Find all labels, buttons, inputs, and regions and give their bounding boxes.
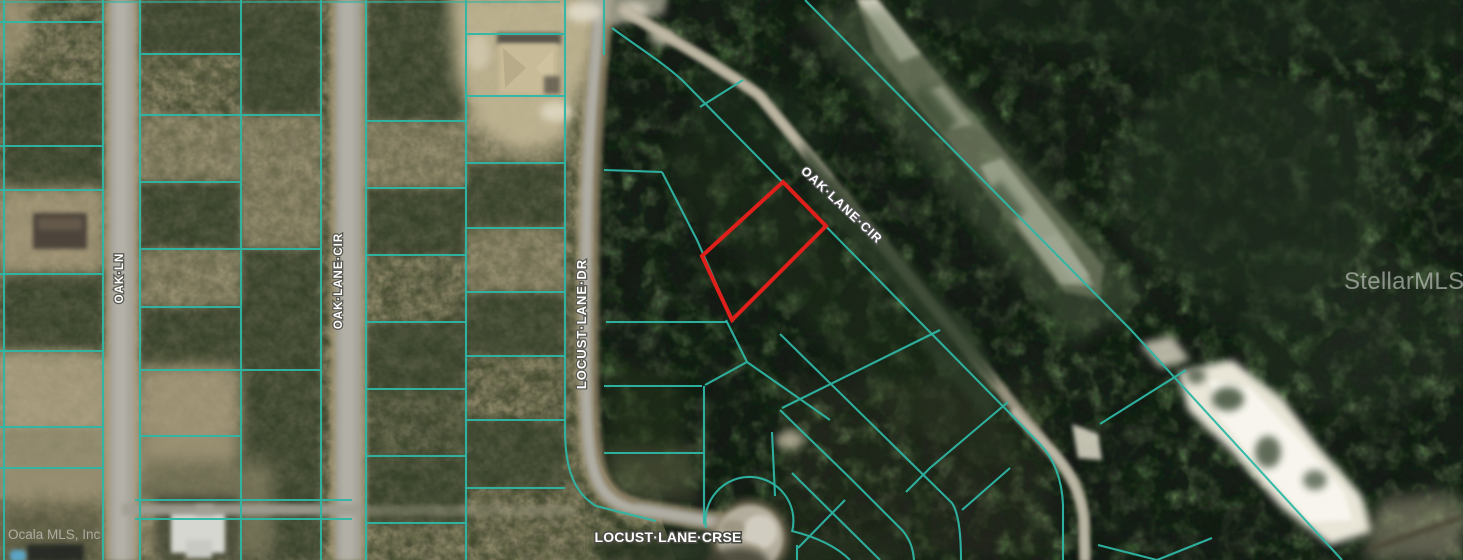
- svg-text:LOCUST·LANE·CRSE: LOCUST·LANE·CRSE: [594, 529, 741, 545]
- svg-text:Ocala MLS, Inc: Ocala MLS, Inc: [8, 527, 101, 542]
- svg-text:OAK·LANE·CIR: OAK·LANE·CIR: [333, 233, 345, 329]
- svg-text:LOCUST·LANE·DR: LOCUST·LANE·DR: [574, 259, 589, 389]
- svg-text:OAK·LN: OAK·LN: [114, 253, 126, 304]
- svg-text:StellarMLS: StellarMLS: [1344, 268, 1463, 295]
